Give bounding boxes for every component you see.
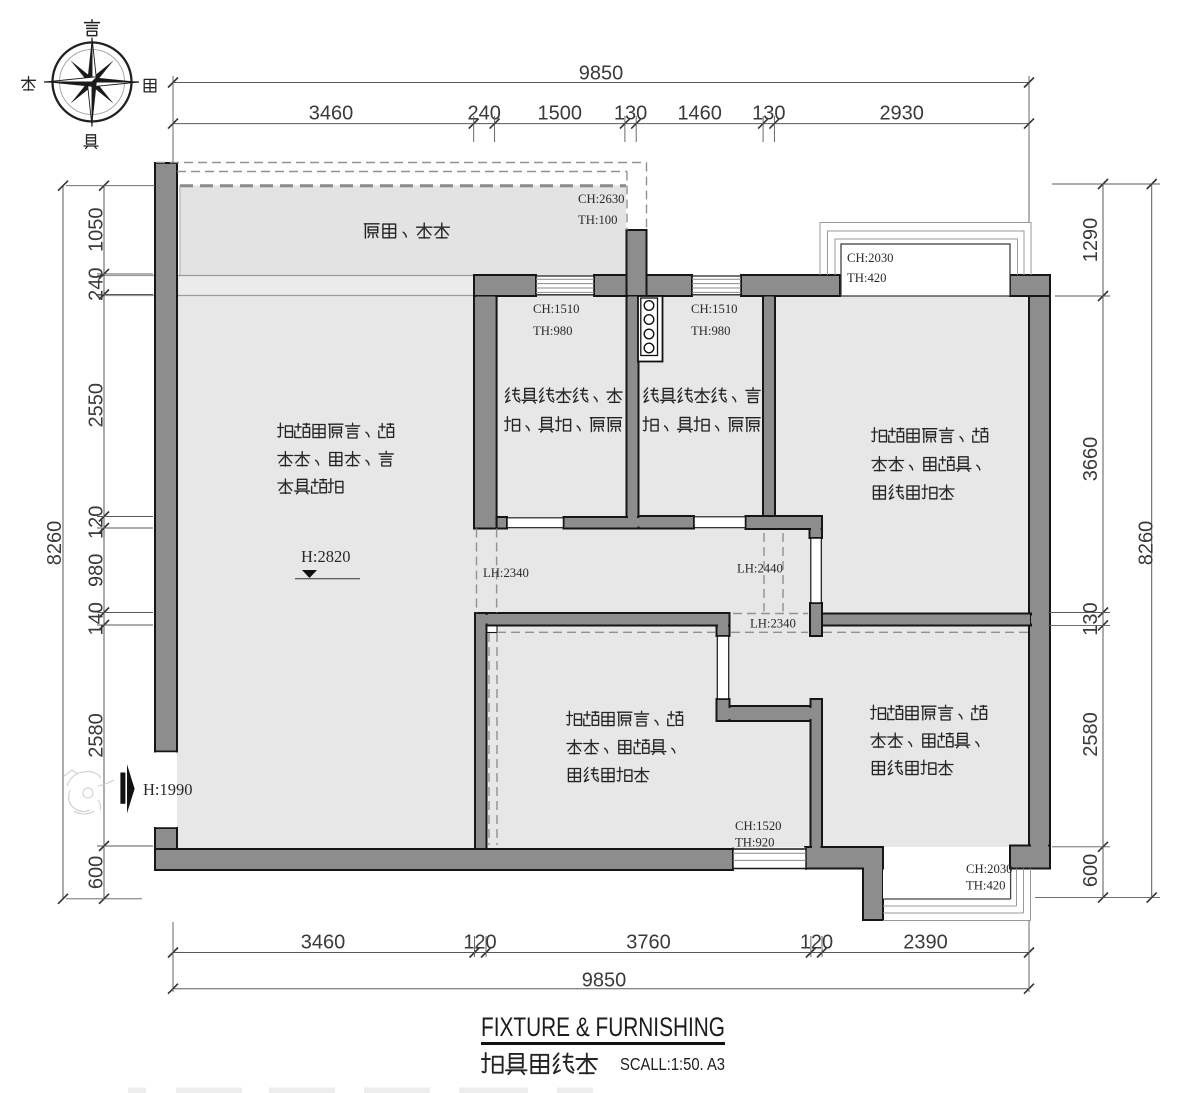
svg-text:3760: 3760 <box>626 932 671 954</box>
svg-text:3460: 3460 <box>301 932 346 954</box>
svg-text:TH:420: TH:420 <box>847 271 886 285</box>
svg-text:1500: 1500 <box>538 103 583 125</box>
svg-text:600: 600 <box>1080 854 1102 887</box>
svg-text:TH:980: TH:980 <box>691 324 730 338</box>
svg-text:TH:920: TH:920 <box>735 836 774 850</box>
svg-text:FIXTURE & FURNISHING: FIXTURE & FURNISHING <box>481 1012 725 1042</box>
svg-text:LH:2440: LH:2440 <box>737 562 783 576</box>
svg-text:3660: 3660 <box>1080 437 1102 482</box>
svg-text:2580: 2580 <box>86 713 108 758</box>
svg-text:CH:2630: CH:2630 <box>578 192 625 206</box>
svg-text:130: 130 <box>614 103 647 125</box>
svg-text:1290: 1290 <box>1080 218 1102 263</box>
svg-text:2550: 2550 <box>86 383 108 428</box>
svg-text:2930: 2930 <box>879 103 924 125</box>
svg-text:9850: 9850 <box>579 63 624 85</box>
svg-text:H:1990: H:1990 <box>143 780 193 799</box>
svg-text:1460: 1460 <box>677 103 722 125</box>
svg-text:8260: 8260 <box>44 521 66 566</box>
svg-text:1050: 1050 <box>86 208 108 253</box>
svg-text:H:2820: H:2820 <box>301 547 351 566</box>
svg-text:3460: 3460 <box>309 103 354 125</box>
svg-text:240: 240 <box>468 103 501 125</box>
svg-text:980: 980 <box>86 554 108 587</box>
svg-text:TH:980: TH:980 <box>533 324 572 338</box>
svg-text:LH:2340: LH:2340 <box>750 617 796 631</box>
svg-text:140: 140 <box>86 602 108 635</box>
svg-text:130: 130 <box>1080 602 1102 635</box>
svg-text:LH:2340: LH:2340 <box>483 566 529 580</box>
svg-text:9850: 9850 <box>582 970 627 992</box>
svg-text:120: 120 <box>463 932 496 954</box>
svg-text:TH:420: TH:420 <box>966 879 1005 893</box>
svg-text:8260: 8260 <box>1136 521 1158 566</box>
svg-text:CH:2030: CH:2030 <box>847 251 894 265</box>
svg-text:120: 120 <box>800 932 833 954</box>
svg-text:130: 130 <box>752 103 785 125</box>
svg-text:2390: 2390 <box>903 932 948 954</box>
svg-text:CH:1510: CH:1510 <box>691 302 738 316</box>
svg-text:SCALL:1:50. A3: SCALL:1:50. A3 <box>620 1054 725 1074</box>
svg-text:CH:2030: CH:2030 <box>966 862 1013 876</box>
svg-text:TH:100: TH:100 <box>578 213 617 227</box>
svg-text:240: 240 <box>86 268 108 301</box>
svg-text:120: 120 <box>86 506 108 539</box>
svg-text:CH:1510: CH:1510 <box>533 302 580 316</box>
svg-text:600: 600 <box>86 856 108 889</box>
svg-text:CH:1520: CH:1520 <box>735 819 782 833</box>
svg-text:2580: 2580 <box>1080 712 1102 757</box>
